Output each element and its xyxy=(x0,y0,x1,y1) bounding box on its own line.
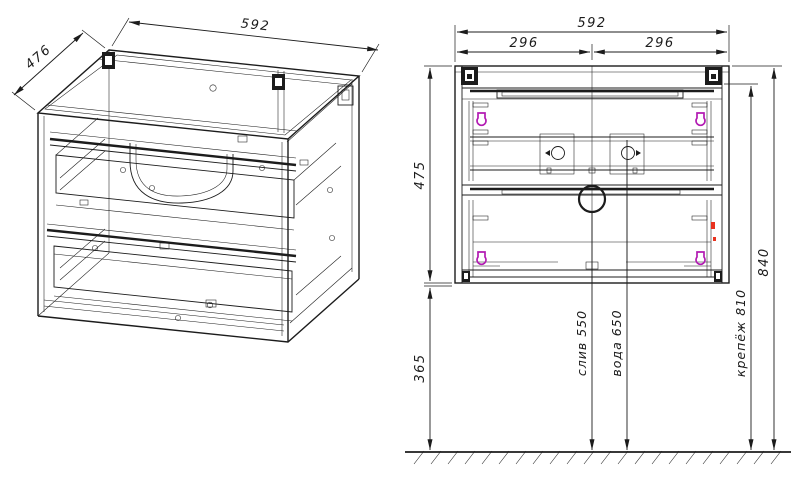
front-dim-overall-height-label: 840 xyxy=(757,247,772,276)
iso-view: 592 476 xyxy=(12,16,379,342)
iso-lower-drawer xyxy=(54,229,341,321)
front-corner-brackets xyxy=(461,67,722,85)
iso-dim-width-label: 592 xyxy=(240,16,271,34)
front-dim-floor-clearance-label: 365 xyxy=(413,353,428,382)
front-dim-water-label: вода 650 xyxy=(609,309,624,376)
front-dim-drain-label: слив 550 xyxy=(574,310,589,376)
front-dim-floor-clearance: 365 xyxy=(413,286,452,450)
floor-line xyxy=(405,451,791,464)
iso-hanging-rail-and-brackets xyxy=(102,52,353,133)
front-view: 592 296 296 475 365 840 крепёж 8 xyxy=(413,16,782,450)
front-dim-left-half-label: 296 xyxy=(509,36,538,51)
front-red-marks xyxy=(711,222,716,241)
front-dim-cabinet-height: 475 xyxy=(413,66,452,283)
front-dim-width-label: 592 xyxy=(577,16,606,31)
front-dim-cabinet-height-label: 475 xyxy=(413,160,428,189)
front-dim-width: 592 xyxy=(455,16,729,62)
iso-hardware-details xyxy=(80,85,335,321)
technical-drawing-canvas: 592 476 xyxy=(0,0,793,486)
front-dim-mounting-label: крепёж 810 xyxy=(733,289,748,377)
front-dim-drain: слив 550 xyxy=(574,212,592,450)
iso-dim-depth: 476 xyxy=(12,30,105,110)
iso-dim-depth-label: 476 xyxy=(23,42,55,73)
iso-drawer-rails xyxy=(47,132,296,262)
front-dim-right-half-label: 296 xyxy=(645,36,674,51)
front-dim-water: вода 650 xyxy=(609,140,627,450)
front-dim-overall-height: 840 xyxy=(732,66,782,450)
iso-upper-drawer xyxy=(56,118,341,230)
